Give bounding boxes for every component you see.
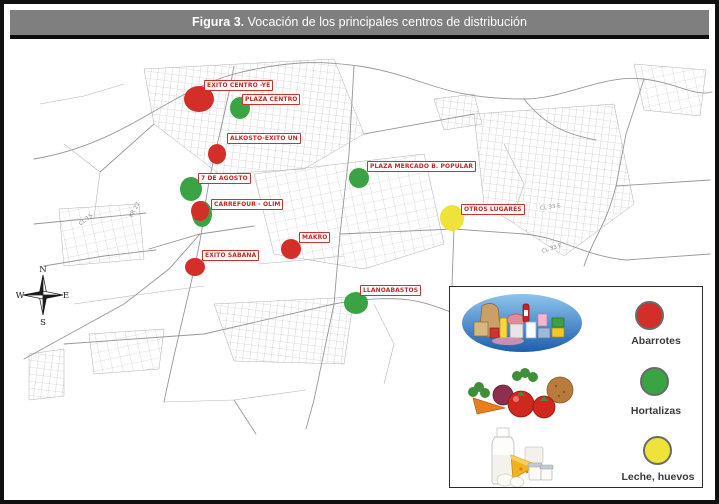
legend-box: Abarrotes Hortalizas Leche, huevos [449,286,703,488]
street-name-label: CL 33 E [540,203,562,212]
marker-label: MAKRO [299,232,330,243]
marker-label: 7 DE AGOSTO [198,173,251,184]
abarrotes-image [460,292,585,354]
street-name-label: CL 15 [78,213,94,227]
legend-label-leche-huevos: Leche, huevos [622,471,695,483]
street-name-label: KR 27 [128,201,141,218]
legend-dot-abarrotes [635,301,664,330]
marker-label: PLAZA MERCADO B. POPULAR [367,161,476,172]
figure-page: Figura 3. Vocación de los principales ce… [0,0,719,504]
legend-dot-leche-huevos [643,436,672,465]
marker-label: EXITO SABANA [202,250,259,261]
marker-dot-hortalizas [349,168,369,188]
marker-dot-abarrotes [281,239,301,259]
leche-huevos-image [485,427,555,487]
map-area: N S W E EXITO CENTRO -YEPLAZA CENTROALKO… [4,43,719,504]
street-name-label: CL 33 E [541,243,563,255]
marker-dot-abarrotes [208,144,226,164]
marker-label: CARREFOUR - OLIM [211,199,283,210]
hortalizas-image [465,368,578,420]
legend-dot-hortalizas [640,367,669,396]
legend-label-abarrotes: Abarrotes [631,335,681,347]
marker-label: ALKOSTO-EXITO UN [227,133,301,144]
marker-label: PLAZA CENTRO [242,94,300,105]
marker-label: EXITO CENTRO -YE [204,80,273,91]
marker-dot-abarrotes [191,201,209,221]
marker-label: LLANOABASTOS [360,285,421,296]
legend-label-hortalizas: Hortalizas [631,405,681,417]
marker-label: OTROS LUGARES [461,204,525,215]
